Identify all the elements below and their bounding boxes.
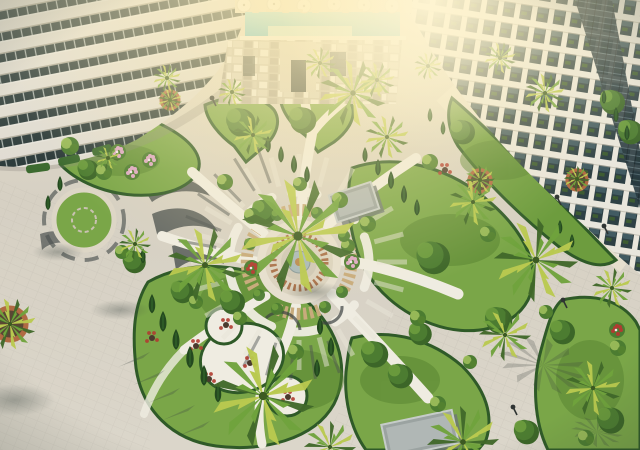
lighting [0, 0, 640, 450]
vignette [0, 0, 640, 450]
courtyard-render [0, 0, 640, 450]
render-canvas [0, 0, 640, 450]
